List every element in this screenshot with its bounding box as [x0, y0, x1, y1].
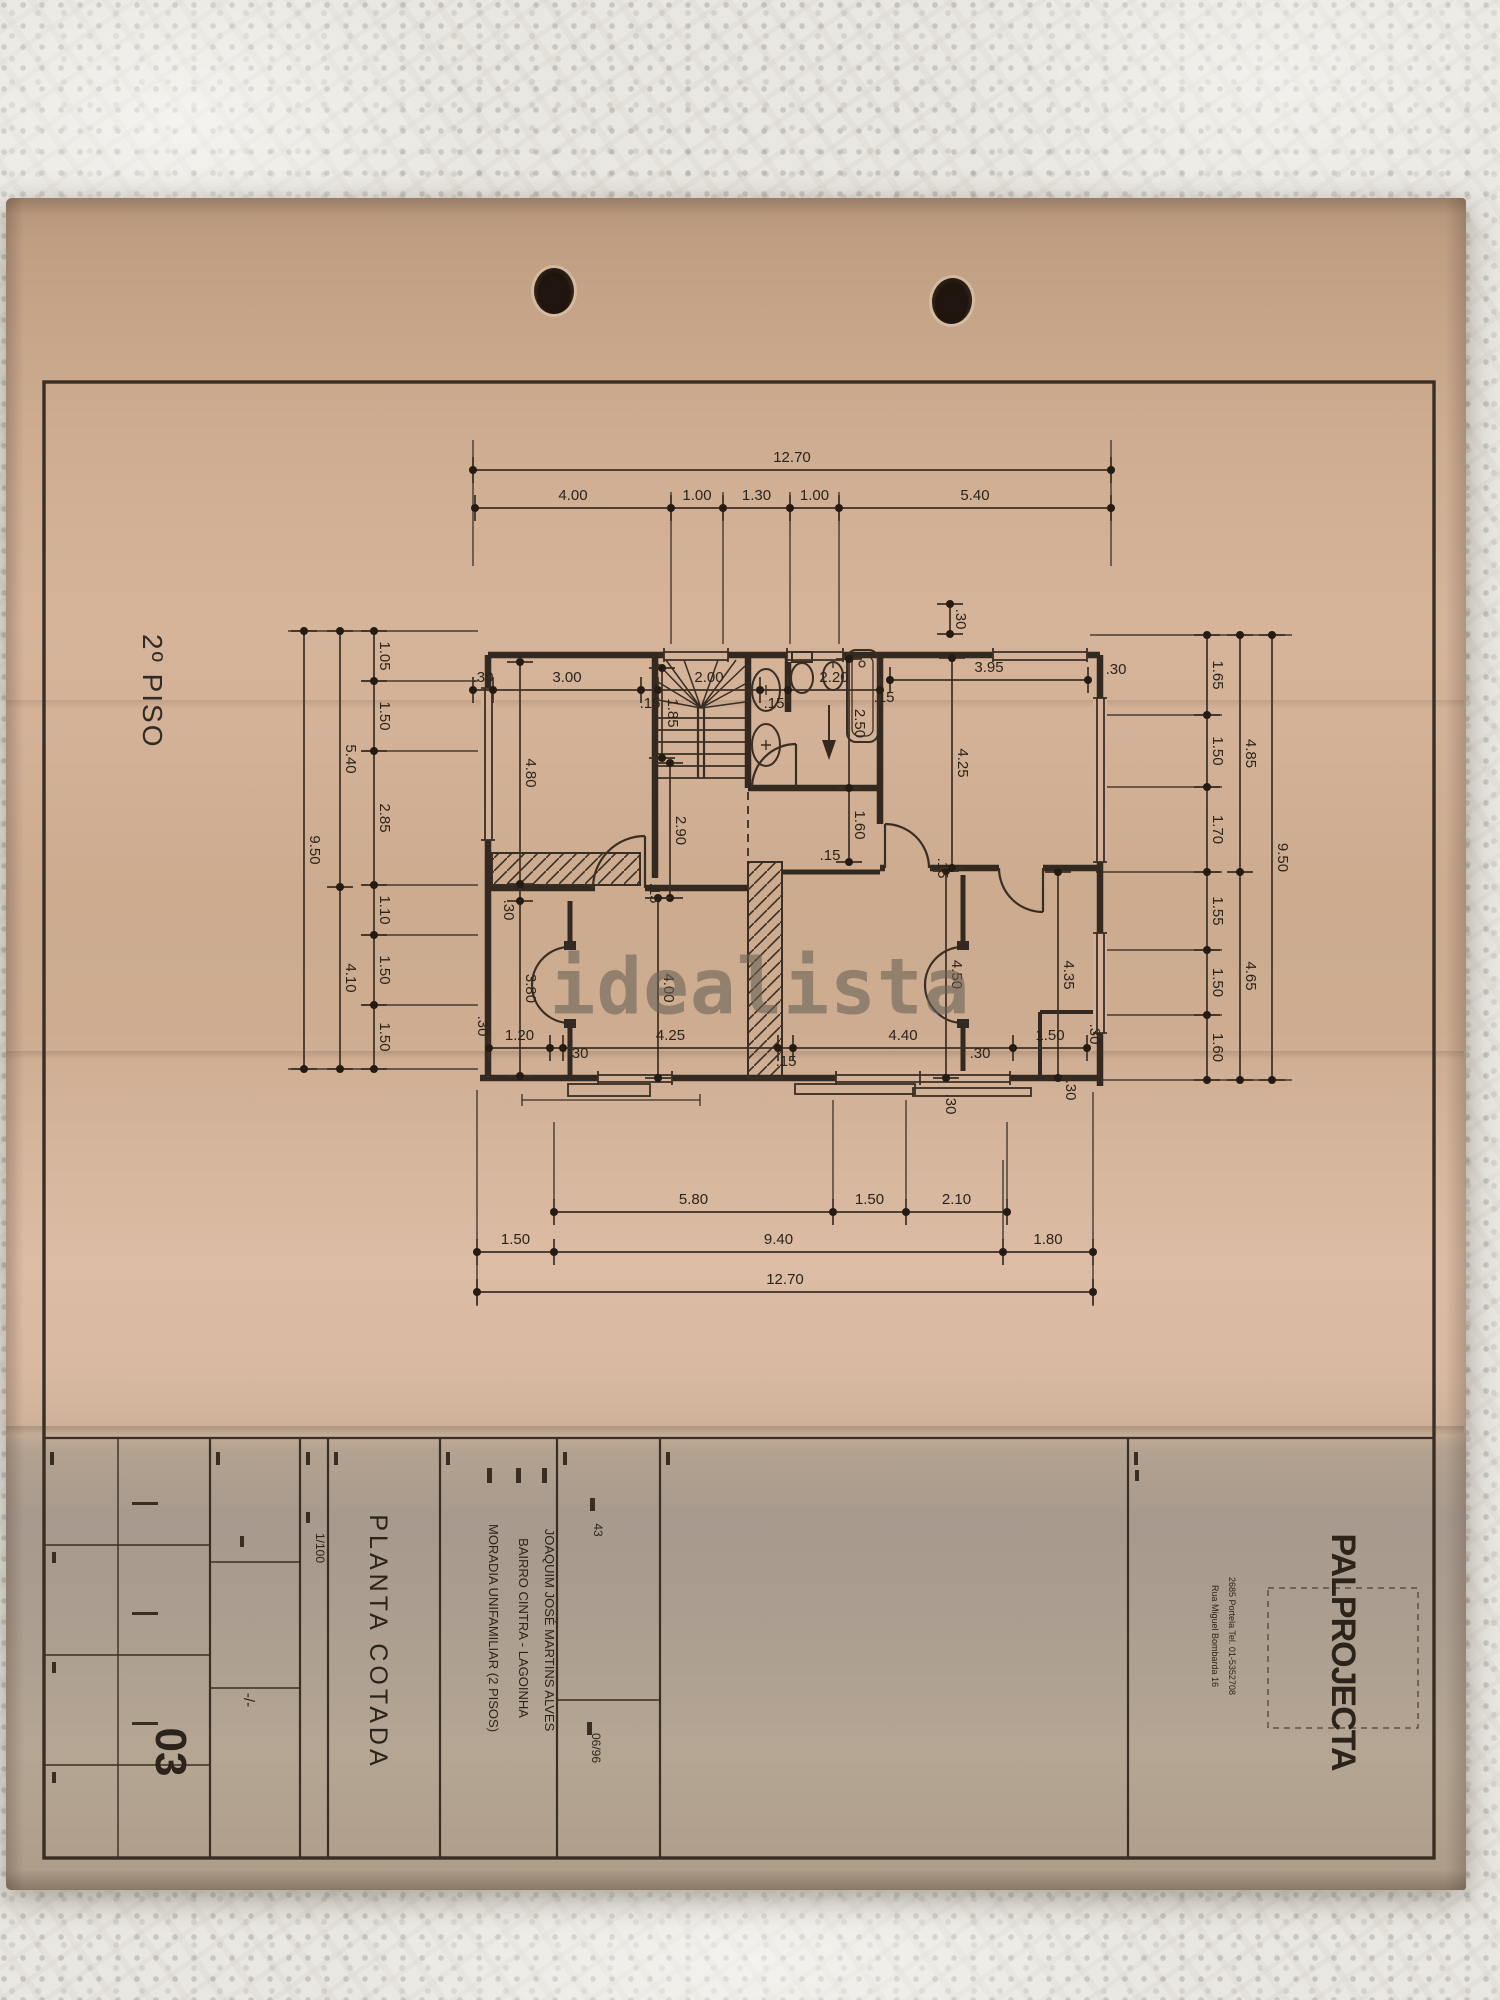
- svg-text:.15: .15: [640, 695, 661, 712]
- svg-text:BAIRRO CINTRA - LAGOINHA: BAIRRO CINTRA - LAGOINHA: [516, 1538, 531, 1718]
- svg-text:4.85: 4.85: [1242, 739, 1259, 768]
- svg-text:1.55: 1.55: [1209, 896, 1226, 925]
- svg-text:MORADIA UNIFAMILIAR (2 PISOS): MORADIA UNIFAMILIAR (2 PISOS): [486, 1524, 501, 1732]
- svg-text:1.60: 1.60: [851, 810, 868, 839]
- svg-text:1.00: 1.00: [800, 487, 829, 504]
- svg-text:1.50: 1.50: [855, 1191, 884, 1208]
- svg-text:.15: .15: [776, 1053, 797, 1070]
- svg-text:03: 03: [146, 1728, 195, 1777]
- door-arc: [885, 824, 929, 868]
- svg-text:.15: .15: [646, 883, 663, 904]
- svg-text:2.00: 2.00: [694, 669, 723, 686]
- svg-text:1.50: 1.50: [1209, 736, 1226, 765]
- photo-scene: 12.704.001.001.301.005.40.303.002.002.20…: [0, 0, 1500, 2000]
- svg-text:4.00: 4.00: [558, 487, 587, 504]
- svg-text:PLANTA COTADA: PLANTA COTADA: [364, 1514, 392, 1769]
- svg-text:1.00: 1.00: [682, 487, 711, 504]
- svg-text:1.50: 1.50: [376, 701, 393, 730]
- svg-text:2.90: 2.90: [672, 816, 689, 845]
- svg-text:.30: .30: [568, 1045, 589, 1062]
- svg-text:3.95: 3.95: [974, 659, 1003, 676]
- svg-text:1/100: 1/100: [313, 1533, 327, 1563]
- svg-text:1.85: 1.85: [664, 698, 681, 727]
- window-top-3: [993, 648, 1087, 662]
- svg-text:.30: .30: [500, 900, 517, 921]
- svg-text:2.10: 2.10: [942, 1191, 971, 1208]
- door-arc: [999, 868, 1043, 912]
- window-top-1: [664, 648, 728, 662]
- svg-text:1.20: 1.20: [505, 1027, 534, 1044]
- svg-text:5.40: 5.40: [342, 744, 359, 773]
- svg-text:.15: .15: [820, 847, 841, 864]
- svg-text:4.10: 4.10: [342, 963, 359, 992]
- svg-text:.30: .30: [1062, 1080, 1079, 1101]
- window-left: [481, 688, 495, 840]
- svg-text:1.50: 1.50: [376, 955, 393, 984]
- svg-text:4.25: 4.25: [954, 748, 971, 777]
- svg-text:2.20: 2.20: [819, 669, 848, 686]
- svg-text:1.80: 1.80: [1033, 1231, 1062, 1248]
- window-right-2: [1093, 933, 1107, 1033]
- svg-text:.15: .15: [764, 695, 785, 712]
- blueprint-sheet: 12.704.001.001.301.005.40.303.002.002.20…: [0, 0, 1500, 2000]
- svg-text:.15: .15: [934, 858, 951, 879]
- svg-text:1.65: 1.65: [1209, 660, 1226, 689]
- svg-text:Rua Miguel Bombarda 16: Rua Miguel Bombarda 16: [1210, 1585, 1220, 1687]
- idealista-watermark: idealista: [540, 941, 980, 1032]
- svg-text:2685 Portela Tel. 01-5352708: 2685 Portela Tel. 01-5352708: [1227, 1577, 1237, 1695]
- svg-text:06/96: 06/96: [589, 1733, 603, 1763]
- svg-text:1.50: 1.50: [501, 1231, 530, 1248]
- svg-text:1.10: 1.10: [376, 895, 393, 924]
- svg-text:4.35: 4.35: [1060, 960, 1077, 989]
- svg-text:3.00: 3.00: [552, 669, 581, 686]
- svg-text:9.50: 9.50: [306, 835, 323, 864]
- svg-text:2.85: 2.85: [376, 803, 393, 832]
- svg-text:1.50: 1.50: [1035, 1027, 1064, 1044]
- svg-text:1.60: 1.60: [1209, 1033, 1226, 1062]
- svg-text:.30: .30: [1106, 661, 1127, 678]
- svg-text:PALPROJECTA: PALPROJECTA: [1324, 1533, 1362, 1771]
- svg-text:.30: .30: [473, 669, 494, 686]
- floor-label: 2º PISO: [136, 634, 168, 749]
- svg-text:.30: .30: [1086, 1024, 1103, 1045]
- window-top-2: [787, 648, 843, 662]
- svg-text:2.50: 2.50: [851, 709, 868, 738]
- dimension-chains: [291, 457, 1285, 1305]
- svg-text:9.40: 9.40: [764, 1231, 793, 1248]
- svg-text:4.65: 4.65: [1242, 961, 1259, 990]
- svg-text:1.50: 1.50: [376, 1022, 393, 1051]
- border-and-titleblock: [44, 382, 1434, 1858]
- svg-text:-/-: -/-: [240, 1693, 257, 1707]
- svg-text:3.80: 3.80: [522, 974, 539, 1003]
- svg-text:4.80: 4.80: [522, 758, 539, 787]
- window-bottom-2: [836, 1071, 1010, 1085]
- svg-text:JOAQUIM JOSÉ MARTINS ALVES: JOAQUIM JOSÉ MARTINS ALVES: [542, 1529, 557, 1732]
- svg-text:.15: .15: [874, 689, 895, 706]
- svg-text:1.50: 1.50: [1209, 968, 1226, 997]
- svg-text:9.50: 9.50: [1274, 843, 1291, 872]
- svg-text:43: 43: [591, 1523, 605, 1537]
- window-right-1: [1093, 698, 1107, 862]
- svg-text:1.05: 1.05: [376, 641, 393, 670]
- svg-text:1.30: 1.30: [742, 487, 771, 504]
- svg-text:.30: .30: [970, 1045, 991, 1062]
- svg-text:.30: .30: [474, 1016, 491, 1037]
- svg-text:5.40: 5.40: [960, 487, 989, 504]
- svg-text:1.70: 1.70: [1209, 815, 1226, 844]
- svg-text:12.70: 12.70: [773, 449, 811, 466]
- stair-direction-arrow: [822, 705, 836, 760]
- svg-text:.30: .30: [952, 609, 969, 630]
- door-arc: [752, 744, 796, 788]
- svg-text:.30: .30: [942, 1094, 959, 1115]
- svg-text:12.70: 12.70: [766, 1271, 804, 1288]
- svg-text:5.80: 5.80: [679, 1191, 708, 1208]
